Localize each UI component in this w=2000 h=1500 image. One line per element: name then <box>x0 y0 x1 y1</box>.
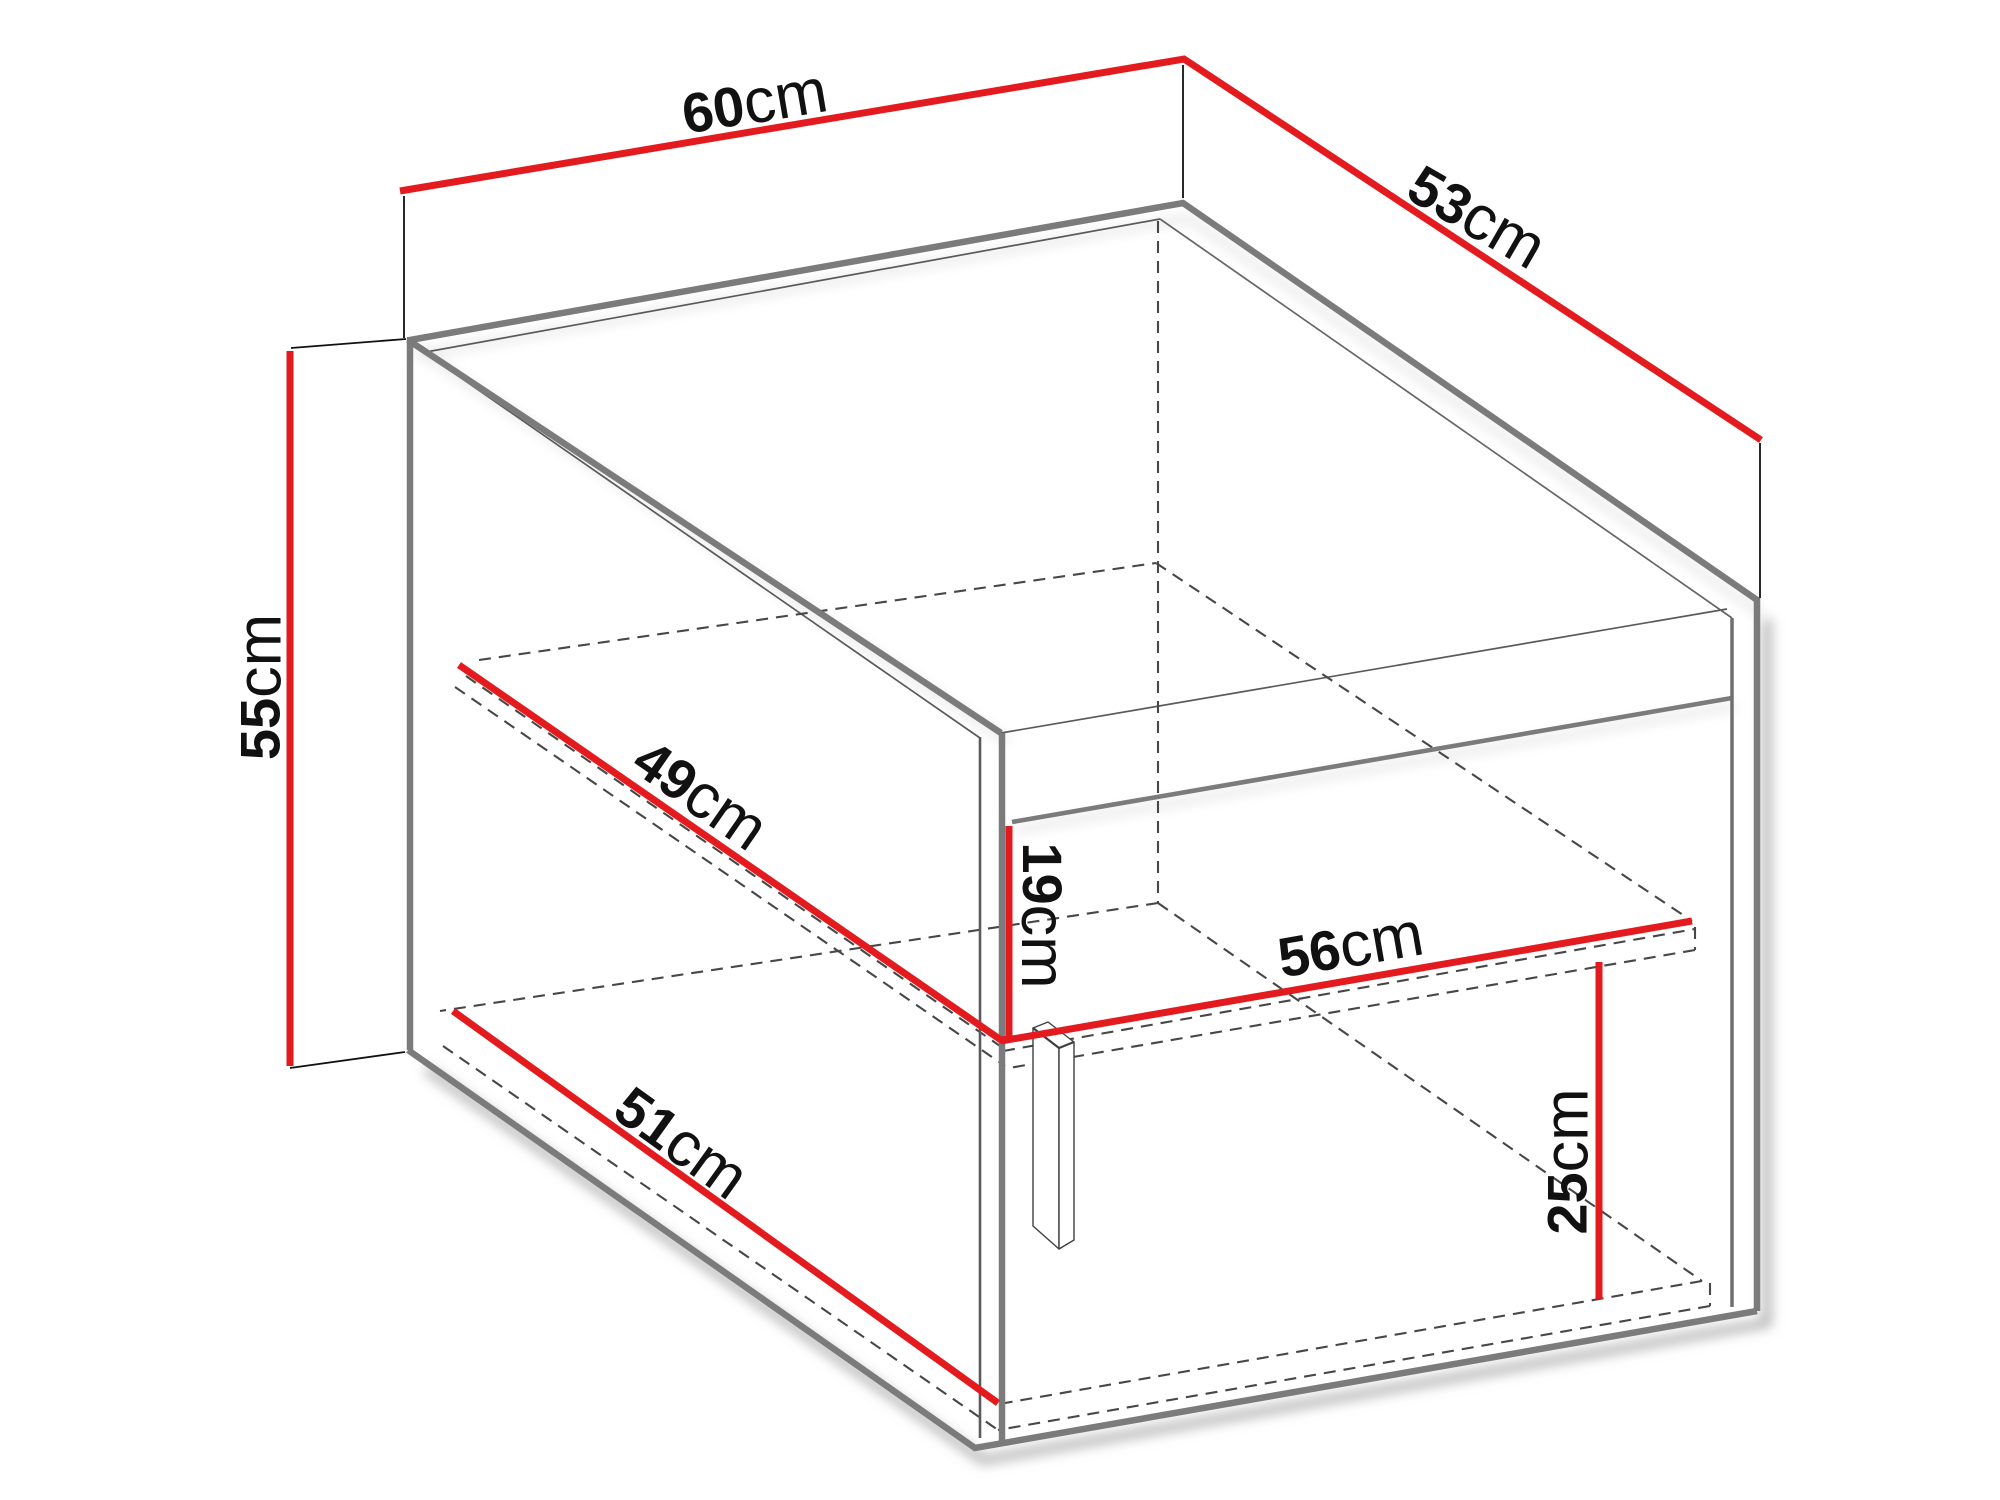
svg-text:25cm: 25cm <box>1532 1088 1602 1234</box>
svg-text:19cm: 19cm <box>1008 842 1078 988</box>
svg-text:55cm: 55cm <box>225 614 295 760</box>
